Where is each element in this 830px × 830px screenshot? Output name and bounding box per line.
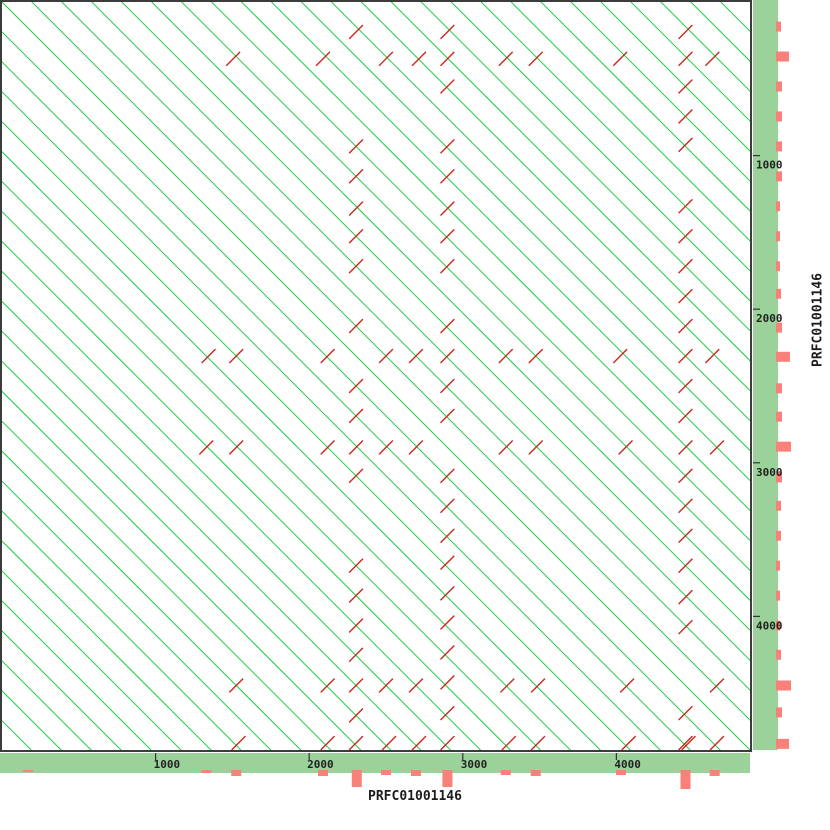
x-histogram-bar bbox=[442, 770, 452, 787]
reverse-match-mark bbox=[679, 52, 693, 66]
forward-diagonal-line bbox=[2, 2, 750, 217]
y-axis-title: PRFC01001146 bbox=[811, 273, 826, 367]
x-histogram-bar bbox=[201, 770, 211, 773]
reverse-match-mark bbox=[441, 409, 455, 423]
reverse-match-mark bbox=[441, 25, 455, 39]
y-histogram-bar bbox=[776, 707, 782, 717]
forward-diagonal-line bbox=[2, 625, 750, 750]
forward-diagonal-line bbox=[2, 2, 750, 636]
reverse-match-mark bbox=[441, 499, 455, 513]
y-histogram-bar bbox=[776, 201, 780, 211]
y-histogram-bar bbox=[776, 591, 780, 601]
reverse-match-mark bbox=[441, 469, 455, 483]
y-histogram-bar bbox=[776, 231, 780, 241]
reverse-match-mark bbox=[679, 706, 693, 720]
x-histogram-bar bbox=[411, 770, 421, 776]
y-axis-histogram: 1000200030004000 bbox=[753, 0, 830, 752]
y-axis-margin-band: 1000200030004000 bbox=[753, 0, 830, 752]
forward-diagonal-line bbox=[2, 2, 750, 157]
y-histogram-bar bbox=[776, 442, 791, 452]
x-tick-label: 3000 bbox=[461, 758, 488, 771]
reverse-match-mark bbox=[379, 441, 393, 455]
y-histogram-bar bbox=[776, 81, 782, 91]
reverse-match-mark bbox=[412, 52, 426, 66]
y-histogram-bar bbox=[776, 561, 780, 571]
x-histogram-bar bbox=[710, 770, 720, 776]
reverse-match-mark bbox=[379, 52, 393, 66]
forward-diagonal-line bbox=[2, 86, 750, 750]
reverse-match-mark bbox=[321, 736, 335, 750]
forward-diagonal-line bbox=[2, 2, 750, 127]
reverse-match-mark bbox=[441, 706, 455, 720]
reverse-match-mark bbox=[202, 349, 216, 363]
reverse-match-mark bbox=[620, 679, 634, 693]
forward-diagonal-line bbox=[2, 2, 750, 666]
y-axis-band bbox=[753, 0, 778, 750]
reverse-match-mark bbox=[499, 52, 513, 66]
forward-diagonal-line bbox=[2, 2, 750, 606]
reverse-match-mark bbox=[409, 441, 423, 455]
y-tick-label: 1000 bbox=[756, 159, 783, 172]
y-tick-label: 3000 bbox=[756, 466, 783, 479]
x-histogram-bar bbox=[501, 770, 511, 775]
forward-diagonal-line bbox=[2, 385, 750, 750]
x-tick-label: 4000 bbox=[614, 758, 641, 771]
y-histogram-bar bbox=[776, 22, 781, 32]
reverse-match-mark bbox=[441, 529, 455, 543]
x-histogram-bar bbox=[23, 770, 33, 772]
reverse-match-mark bbox=[349, 441, 363, 455]
reverse-match-mark bbox=[710, 736, 724, 750]
x-tick-label: 1000 bbox=[154, 758, 181, 771]
reverse-match-mark bbox=[349, 736, 363, 750]
reverse-match-mark bbox=[349, 202, 363, 216]
forward-diagonal-line bbox=[2, 146, 750, 750]
reverse-match-mark bbox=[441, 80, 455, 94]
reverse-match-mark bbox=[679, 620, 693, 634]
reverse-match-mark bbox=[679, 590, 693, 604]
forward-diagonal-line bbox=[2, 2, 750, 576]
forward-diagonal-line bbox=[2, 176, 750, 750]
reverse-match-mark bbox=[321, 679, 335, 693]
reverse-match-mark bbox=[500, 679, 514, 693]
forward-diagonal-line bbox=[2, 2, 750, 307]
reverse-match-mark bbox=[441, 586, 455, 600]
reverse-match-mark bbox=[441, 379, 455, 393]
y-histogram-bar bbox=[776, 650, 781, 660]
forward-diagonal-line bbox=[2, 2, 750, 427]
forward-diagonal-line bbox=[2, 236, 750, 750]
reverse-match-mark bbox=[441, 202, 455, 216]
reverse-match-mark bbox=[529, 52, 543, 66]
forward-diagonal-line bbox=[2, 535, 750, 750]
forward-diagonal-line bbox=[2, 445, 750, 750]
reverse-match-mark bbox=[199, 441, 213, 455]
forward-diagonal-line bbox=[2, 116, 750, 750]
forward-diagonal-line bbox=[2, 715, 750, 750]
y-histogram-bar bbox=[776, 289, 781, 299]
y-histogram-bar bbox=[776, 111, 782, 121]
x-histogram-bar bbox=[231, 770, 241, 776]
reverse-match-mark bbox=[441, 52, 455, 66]
x-histogram-bar bbox=[531, 770, 541, 776]
reverse-match-mark bbox=[321, 349, 335, 363]
forward-diagonal-line bbox=[2, 2, 750, 750]
forward-diagonal-line bbox=[2, 26, 750, 750]
reverse-match-mark bbox=[441, 349, 455, 363]
forward-diagonal-line bbox=[2, 355, 750, 750]
y-histogram-bar bbox=[776, 412, 782, 422]
x-tick-label: 2000 bbox=[307, 758, 334, 771]
reverse-match-mark bbox=[499, 441, 513, 455]
reverse-match-mark bbox=[529, 441, 543, 455]
reverse-match-mark bbox=[710, 679, 724, 693]
reverse-match-mark bbox=[679, 441, 693, 455]
y-histogram-bar bbox=[776, 383, 782, 393]
reverse-match-mark bbox=[441, 139, 455, 153]
forward-diagonal-line bbox=[2, 2, 750, 726]
forward-diagonal-line bbox=[2, 595, 750, 750]
reverse-match-mark bbox=[679, 736, 693, 750]
y-histogram-bar bbox=[776, 739, 789, 749]
reverse-match-mark bbox=[441, 736, 455, 750]
forward-diagonal-line bbox=[2, 296, 750, 750]
forward-diagonal-line bbox=[2, 2, 750, 67]
reverse-match-mark bbox=[531, 679, 545, 693]
x-histogram-bar bbox=[680, 770, 690, 789]
y-histogram-bar bbox=[776, 680, 791, 690]
dotplot-plot-area bbox=[2, 2, 750, 750]
y-histogram-bar bbox=[776, 171, 782, 181]
y-histogram-bar bbox=[776, 501, 781, 511]
dotplot-canvas[interactable] bbox=[0, 0, 752, 752]
x-axis-title: PRFC01001146 bbox=[0, 789, 830, 804]
y-histogram-bar bbox=[776, 141, 782, 151]
forward-diagonal-line bbox=[2, 2, 750, 397]
forward-diagonal-line bbox=[2, 475, 750, 750]
reverse-match-mark bbox=[679, 138, 693, 152]
forward-diagonal-line bbox=[2, 2, 750, 277]
reverse-match-mark bbox=[349, 648, 363, 662]
forward-diagonal-line bbox=[2, 325, 750, 750]
y-histogram-bar bbox=[776, 352, 790, 362]
x-histogram-bar bbox=[381, 770, 391, 775]
forward-diagonal-line bbox=[2, 2, 750, 516]
dotplot-page: 1000200030004000 1000200030004000 PRFC01… bbox=[0, 0, 830, 830]
reverse-match-mark bbox=[441, 259, 455, 273]
y-histogram-bar bbox=[776, 531, 781, 541]
reverse-match-mark bbox=[229, 441, 243, 455]
forward-diagonal-line bbox=[2, 2, 750, 37]
reverse-match-mark bbox=[619, 441, 633, 455]
y-tick-label: 4000 bbox=[756, 619, 783, 632]
forward-diagonal-line bbox=[2, 2, 750, 367]
forward-diagonal-line bbox=[2, 685, 750, 750]
reverse-match-mark bbox=[441, 229, 455, 243]
reverse-match-mark bbox=[441, 169, 455, 183]
y-tick-label: 2000 bbox=[756, 312, 783, 325]
y-histogram-bar bbox=[776, 261, 780, 271]
reverse-match-mark bbox=[613, 52, 627, 66]
y-histogram-bar bbox=[776, 52, 789, 62]
x-histogram-bar bbox=[352, 770, 362, 787]
reverse-match-mark bbox=[441, 319, 455, 333]
forward-diagonal-line bbox=[2, 2, 750, 456]
reverse-match-mark bbox=[705, 349, 719, 363]
